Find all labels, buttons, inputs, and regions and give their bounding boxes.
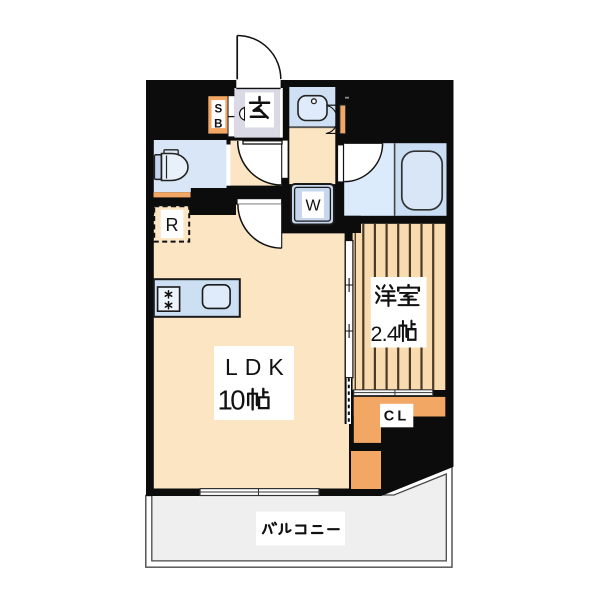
- svg-text:B: B: [214, 118, 222, 130]
- svg-text:2.4: 2.4: [371, 322, 399, 346]
- svg-text:R: R: [166, 215, 179, 235]
- svg-text:LDK: LDK: [225, 354, 291, 380]
- svg-text:W: W: [305, 198, 321, 215]
- svg-text:S: S: [214, 104, 222, 116]
- svg-text:10: 10: [218, 385, 246, 416]
- svg-text:CL: CL: [384, 409, 410, 425]
